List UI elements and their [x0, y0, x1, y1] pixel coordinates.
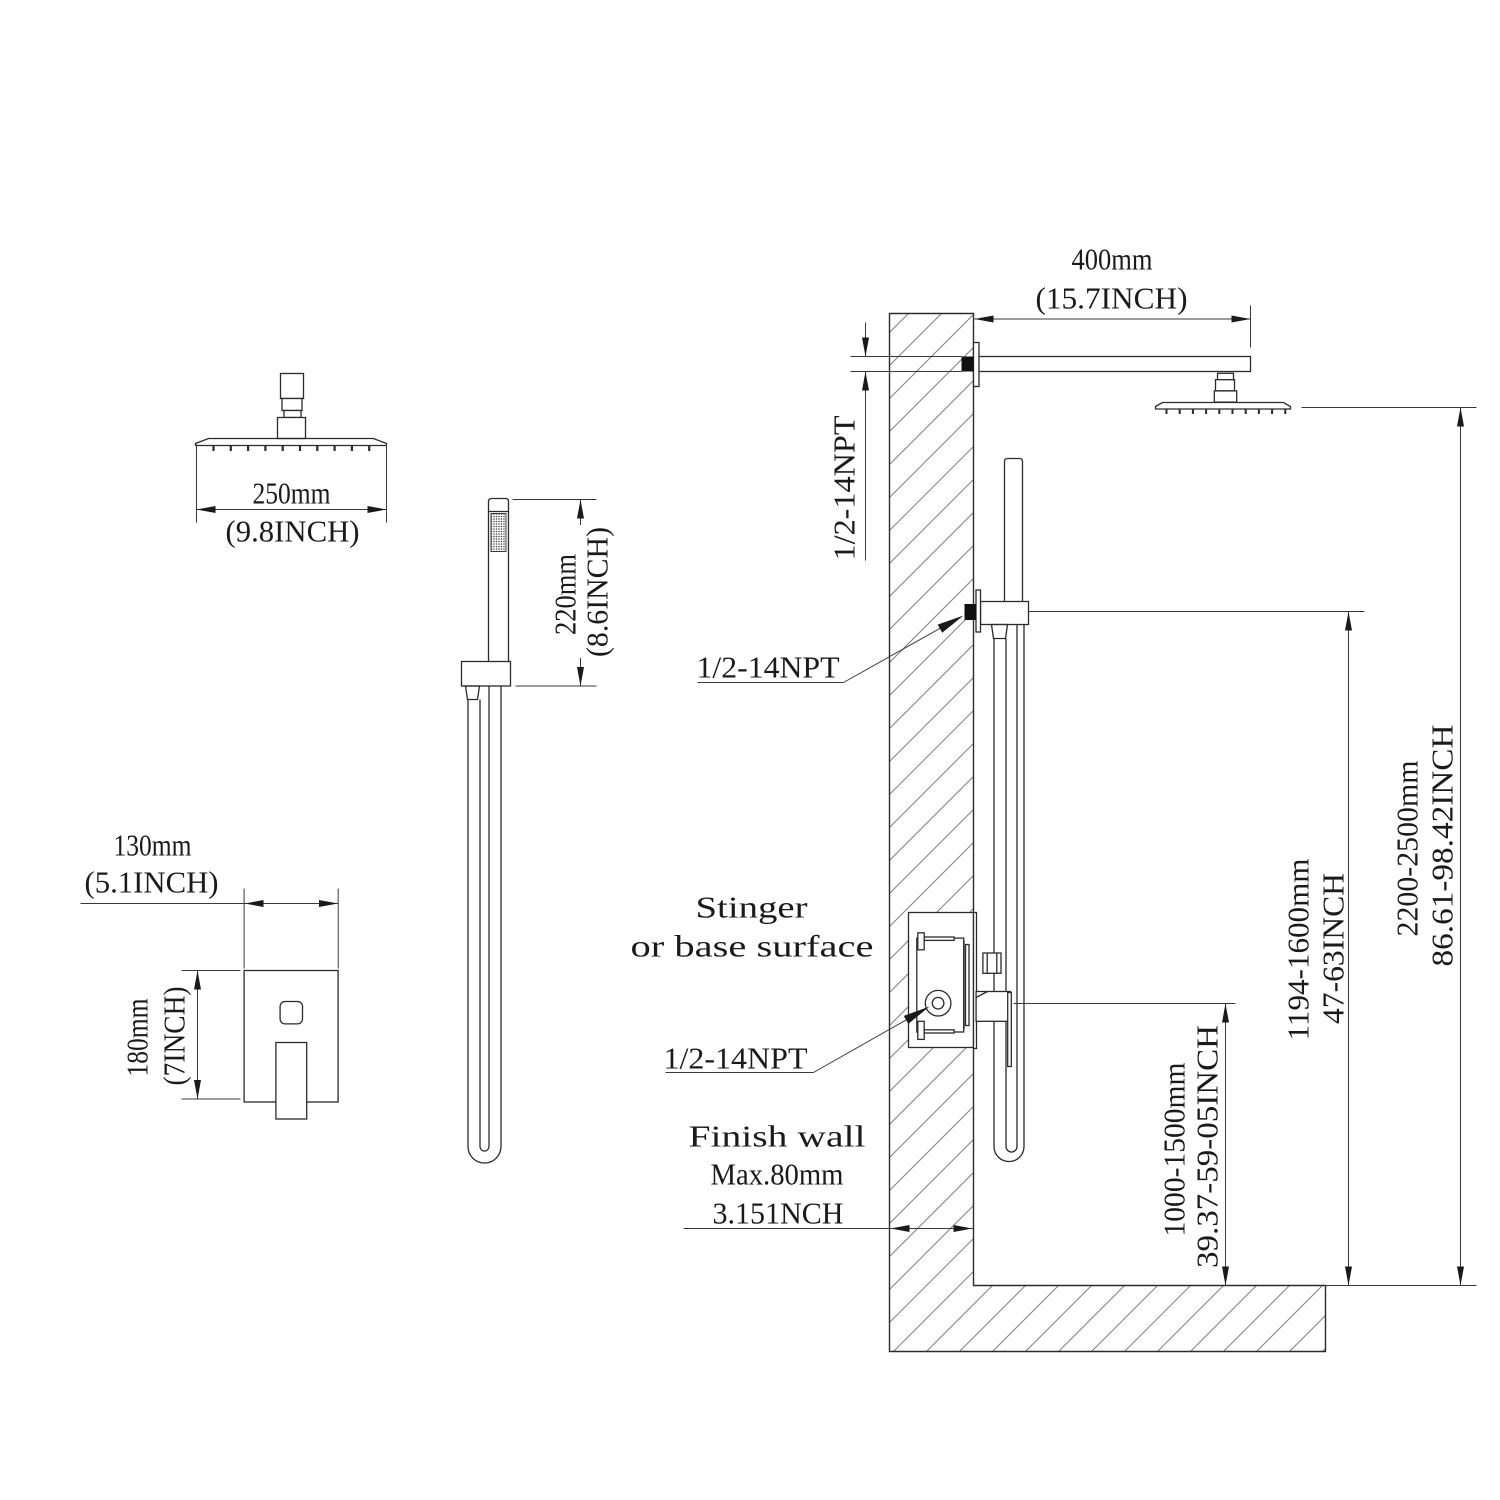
svg-text:1/2-14NPT: 1/2-14NPT	[827, 415, 862, 560]
svg-text:400mm: 400mm	[1072, 242, 1153, 277]
svg-text:86.61-98.42INCH: 86.61-98.42INCH	[1425, 725, 1460, 967]
svg-text:(5.1INCH): (5.1INCH)	[85, 865, 219, 900]
svg-text:1/2-14NPT: 1/2-14NPT	[697, 650, 840, 685]
svg-text:1194-1600mm: 1194-1600mm	[1281, 859, 1316, 1041]
svg-text:1/2-14NPT: 1/2-14NPT	[664, 1041, 808, 1076]
svg-text:Stinger: Stinger	[696, 890, 809, 925]
svg-text:47-63INCH: 47-63INCH	[1316, 873, 1351, 1024]
svg-text:250mm: 250mm	[253, 476, 331, 511]
svg-text:(9.8INCH): (9.8INCH)	[226, 514, 360, 549]
svg-text:1000-1500mm: 1000-1500mm	[1157, 1063, 1192, 1237]
svg-text:Finish wall: Finish wall	[689, 1119, 866, 1154]
svg-text:180mm: 180mm	[120, 999, 155, 1077]
svg-text:Max.80mm: Max.80mm	[711, 1157, 844, 1192]
svg-text:130mm: 130mm	[114, 828, 192, 863]
svg-text:3.151NCH: 3.151NCH	[713, 1196, 844, 1231]
svg-text:(15.7INCH): (15.7INCH)	[1036, 281, 1188, 316]
svg-text:2200-2500mm: 2200-2500mm	[1390, 761, 1425, 937]
svg-text:(7INCH): (7INCH)	[157, 987, 192, 1086]
svg-text:or base surface: or base surface	[631, 929, 874, 964]
svg-text:39.37-59-05INCH: 39.37-59-05INCH	[1190, 1025, 1225, 1268]
svg-text:220mm: 220mm	[548, 554, 583, 635]
svg-text:(8.6INCH): (8.6INCH)	[580, 527, 615, 657]
